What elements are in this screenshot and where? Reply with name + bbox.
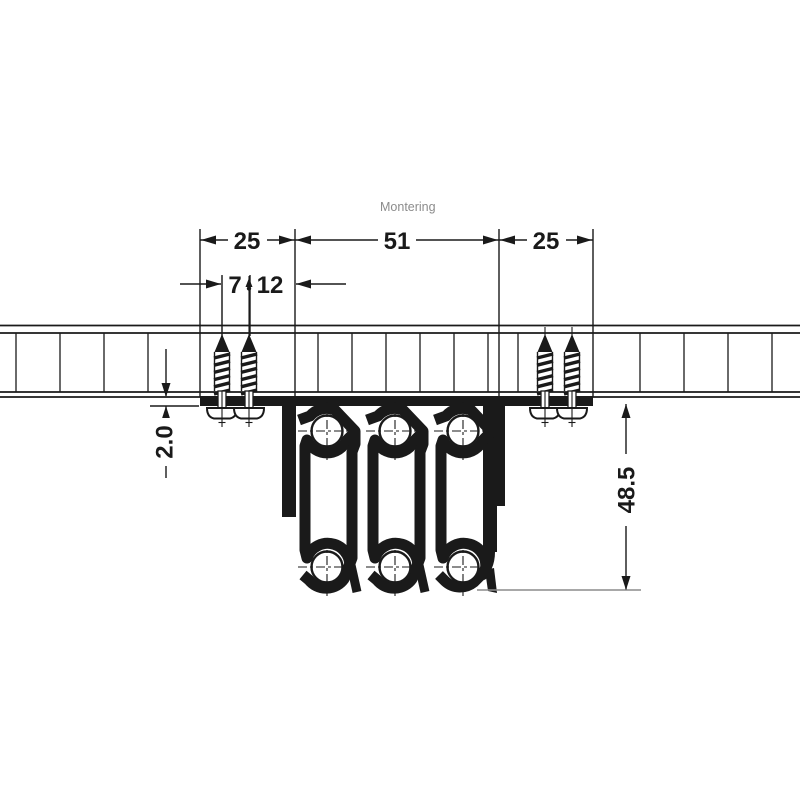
ball-bearings [298, 402, 492, 596]
dim-label-25-left: 25 [234, 228, 261, 255]
drawer-slide-profile [200, 396, 593, 596]
slide-left-web [282, 396, 296, 517]
screw [530, 327, 560, 427]
panel-hatch-lines [16, 333, 772, 392]
dim-label-7: 7 [228, 272, 241, 299]
dimension-top-labels: 25 51 25 [228, 227, 566, 255]
diagram-canvas: Montering [0, 0, 800, 800]
screw [557, 327, 587, 427]
panel-cross-section [0, 326, 800, 398]
dimension-flange-thickness: 2.0 [150, 349, 199, 478]
dim-label-12: 12 [257, 272, 284, 299]
diagram-caption: Montering [380, 200, 436, 214]
mounting-diagram: Montering [0, 0, 800, 800]
dim-label-51: 51 [384, 228, 411, 255]
dimension-screw-row-labels: 7 12 [228, 272, 283, 299]
dim-label-48-5: 48.5 [614, 467, 641, 514]
dim-label-2-0: 2.0 [152, 425, 179, 458]
dim-label-25-right: 25 [533, 228, 560, 255]
